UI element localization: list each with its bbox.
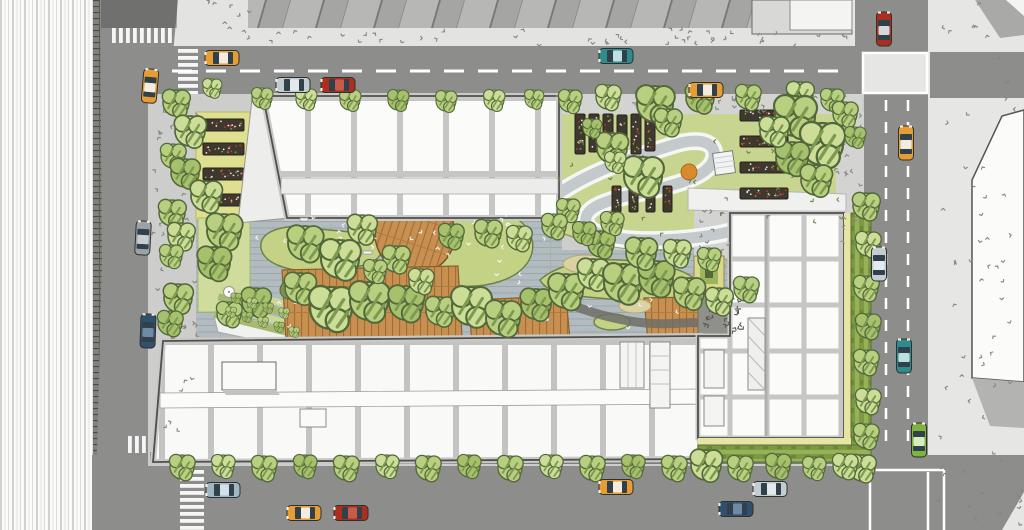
- car: [205, 51, 240, 66]
- bench: [363, 251, 372, 254]
- crosswalk: [112, 28, 172, 43]
- car: [334, 506, 369, 521]
- car: [912, 423, 927, 458]
- stair-core: [748, 318, 765, 390]
- greenhouse: [713, 151, 736, 176]
- north-neighbour-buildings: [176, 0, 852, 46]
- car: [899, 126, 914, 161]
- planter-bed: [740, 188, 788, 199]
- car: [276, 78, 311, 93]
- orange-play-mound: [681, 164, 697, 180]
- planter-bed: [203, 119, 244, 131]
- planter-bed: [663, 186, 672, 212]
- west-neighbour-building: [0, 0, 104, 530]
- site-plan-illustration: Aerial site plan illustration - urban bl…: [0, 0, 1024, 530]
- site-plan-canvas: Aerial site plan illustration - urban bl…: [0, 0, 1024, 530]
- car: [877, 12, 892, 47]
- planter-bed: [631, 114, 641, 154]
- car: [897, 339, 912, 374]
- roof-walkway: [281, 178, 558, 194]
- car: [140, 313, 156, 348]
- striped-rooftop: [0, 0, 93, 530]
- car: [599, 480, 634, 495]
- car: [872, 247, 887, 282]
- car: [719, 502, 754, 517]
- north-road-east: [930, 52, 1024, 98]
- car: [135, 220, 152, 255]
- car: [753, 482, 788, 497]
- south-building: [153, 336, 700, 462]
- car: [206, 483, 241, 498]
- car: [689, 83, 724, 98]
- car: [287, 506, 322, 521]
- car: [599, 49, 634, 64]
- street-shadow: [101, 0, 177, 28]
- car: [321, 78, 356, 93]
- car: [141, 68, 159, 104]
- north-building: [238, 96, 559, 223]
- bench: [300, 218, 308, 221]
